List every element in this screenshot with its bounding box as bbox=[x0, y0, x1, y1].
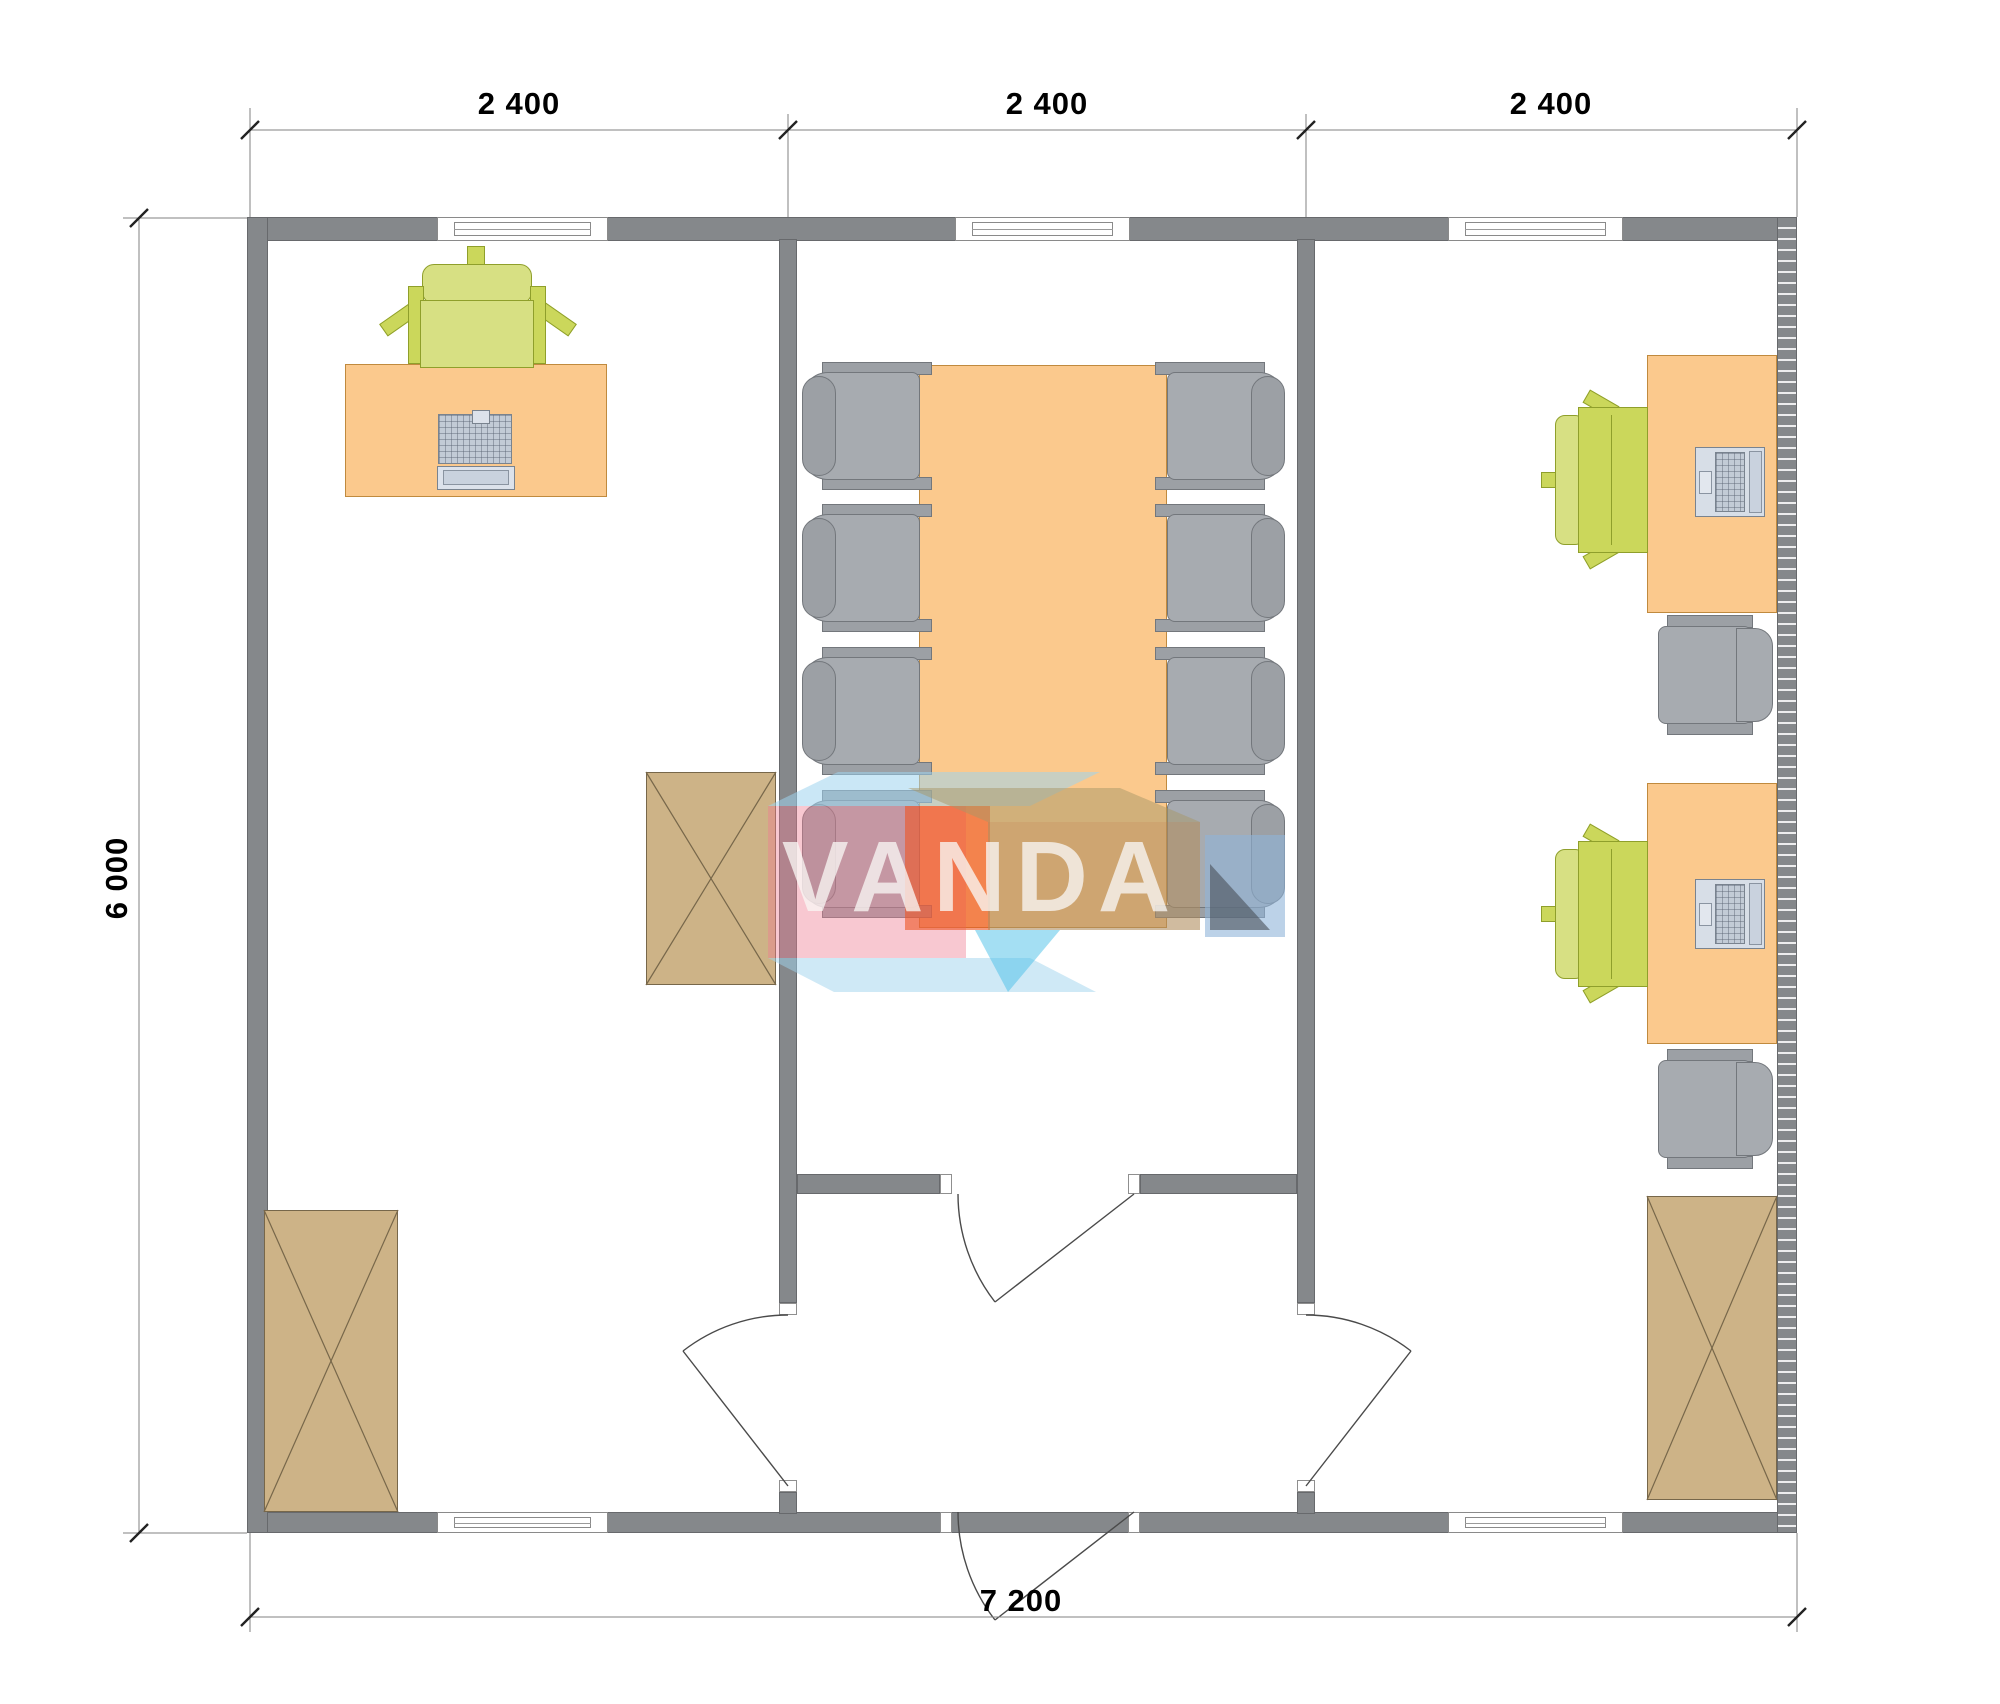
dimension-label-top-3: 2 400 bbox=[1471, 86, 1631, 122]
vanda-watermark-text: VANDA bbox=[721, 827, 1241, 927]
logo-blue-skirt bbox=[768, 958, 1096, 992]
door-swing-meeting-room bbox=[958, 1194, 995, 1302]
door-leaf-left-office bbox=[683, 1351, 788, 1486]
floor-plan-canvas: VANDA 2 400 2 400 2 400 6 000 7 200 bbox=[0, 0, 2000, 1704]
dimension-label-bottom: 7 200 bbox=[941, 1583, 1101, 1619]
dimension-label-top-1: 2 400 bbox=[439, 86, 599, 122]
door-leaf-meeting-room bbox=[995, 1194, 1134, 1302]
door-leaf-right-office bbox=[1306, 1351, 1411, 1486]
door-swing-right-office bbox=[1306, 1315, 1411, 1351]
door-swing-left-office bbox=[683, 1315, 788, 1351]
dimension-label-top-2: 2 400 bbox=[967, 86, 1127, 122]
dimension-label-left: 6 000 bbox=[99, 798, 135, 958]
